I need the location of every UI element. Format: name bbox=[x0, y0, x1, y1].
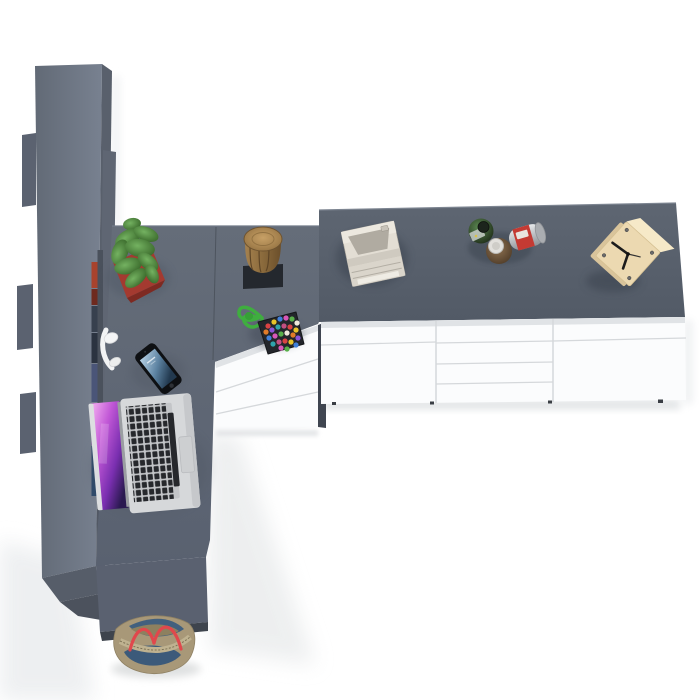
candy-dot bbox=[275, 324, 280, 329]
sideboard-foot-3 bbox=[548, 401, 552, 404]
candy-dot bbox=[293, 342, 298, 347]
sideboard-foot-4 bbox=[658, 400, 663, 404]
laptop-group bbox=[88, 393, 201, 517]
candy-ribbon-knot bbox=[245, 312, 253, 320]
shelf-bump-3 bbox=[20, 392, 36, 454]
laptop-keyboard bbox=[126, 403, 174, 502]
candy-dot bbox=[290, 332, 295, 337]
candy-dot bbox=[281, 323, 286, 328]
book-spine-5 bbox=[92, 364, 98, 402]
candy-dot bbox=[278, 331, 283, 336]
shelf-bump-2 bbox=[17, 284, 33, 350]
book-spine-3 bbox=[92, 306, 98, 332]
candy-dot bbox=[265, 323, 270, 328]
stump-stool[interactable] bbox=[243, 227, 283, 289]
sideboard-front bbox=[321, 317, 686, 404]
jar-green-cap bbox=[478, 222, 489, 233]
book-spine-4 bbox=[92, 333, 98, 363]
jar-brown-lid-inner bbox=[492, 242, 500, 250]
candy-dot bbox=[278, 345, 283, 350]
jar-green-label-dot bbox=[475, 235, 478, 238]
shelf-bump-1 bbox=[22, 133, 36, 207]
laptop-trackpad bbox=[179, 436, 195, 473]
candy-dot bbox=[284, 346, 289, 351]
pedestal-floor-shadow bbox=[216, 430, 318, 436]
candy-dot bbox=[270, 341, 275, 346]
sideboard-foot-1 bbox=[332, 402, 336, 405]
scene-canvas bbox=[0, 0, 700, 700]
candy-dot bbox=[288, 339, 293, 344]
printer-display bbox=[381, 225, 389, 231]
book-spine-2 bbox=[92, 289, 98, 305]
candy-dot bbox=[284, 330, 289, 335]
laptop[interactable] bbox=[88, 393, 208, 517]
render-viewport bbox=[0, 0, 700, 700]
candy-dot bbox=[283, 315, 288, 320]
tote-bag[interactable] bbox=[114, 616, 195, 674]
candy-dot bbox=[293, 327, 298, 332]
candy-dot bbox=[269, 327, 274, 332]
candy-dot bbox=[276, 339, 281, 344]
candy-dot bbox=[294, 320, 299, 325]
book-spine-1 bbox=[92, 262, 98, 288]
sideboard-foot-2 bbox=[430, 402, 434, 405]
printer-group bbox=[341, 221, 405, 287]
candy-dot bbox=[271, 319, 276, 324]
candy-dot bbox=[263, 329, 268, 334]
candy-dot bbox=[289, 316, 294, 321]
candy-dot bbox=[287, 324, 292, 329]
candy-dot bbox=[295, 335, 300, 340]
stump-top bbox=[244, 227, 282, 251]
candy-dot bbox=[272, 333, 277, 338]
candy-dot bbox=[282, 338, 287, 343]
candy-dot bbox=[277, 316, 282, 321]
candy-dot bbox=[266, 335, 271, 340]
